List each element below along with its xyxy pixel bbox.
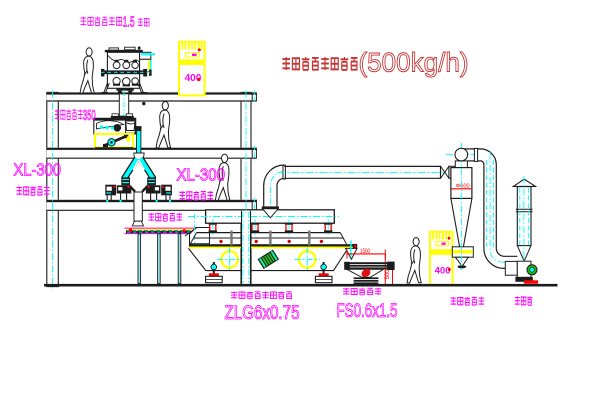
svg-text:XL-300: XL-300 — [14, 160, 62, 180]
svg-text:(500kg/h): (500kg/h) — [359, 48, 469, 78]
svg-text:350: 350 — [83, 108, 96, 124]
svg-text:1500: 1500 — [360, 248, 370, 255]
svg-text:500: 500 — [385, 269, 391, 280]
svg-text:1.5: 1.5 — [123, 14, 135, 31]
svg-text:XL-300: XL-300 — [177, 165, 226, 185]
svg-text:Φ600: Φ600 — [456, 184, 470, 190]
svg-text:400: 400 — [435, 266, 451, 277]
svg-text:ZLG6x0.75: ZLG6x0.75 — [225, 303, 300, 324]
svg-text:FS0.6x1.5: FS0.6x1.5 — [337, 301, 398, 322]
